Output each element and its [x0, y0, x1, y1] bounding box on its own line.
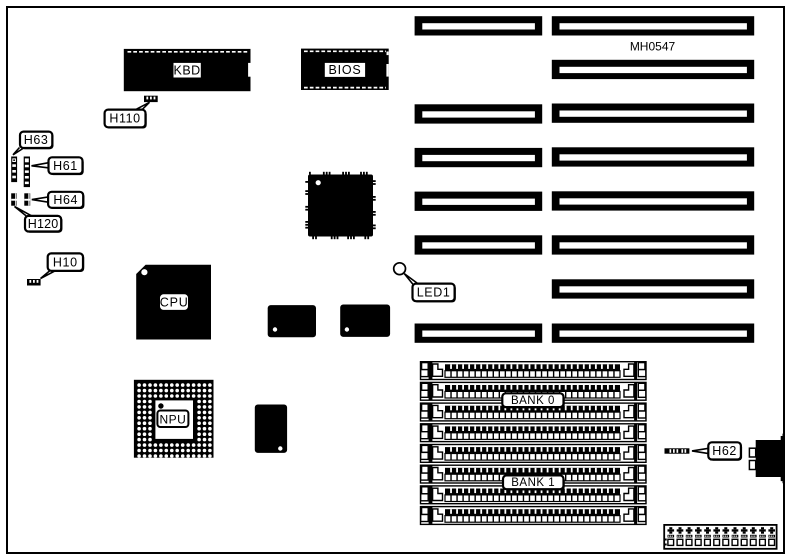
svg-text:BANK 1: BANK 1 — [511, 477, 555, 489]
svg-text:NPU: NPU — [159, 412, 186, 426]
svg-text:KBD: KBD — [173, 63, 200, 77]
svg-text:MH0547: MH0547 — [630, 40, 676, 54]
svg-text:H62: H62 — [712, 444, 737, 458]
svg-text:BIOS: BIOS — [328, 63, 361, 77]
svg-text:H61: H61 — [53, 159, 78, 173]
svg-text:H120: H120 — [28, 217, 59, 231]
svg-text:H63: H63 — [24, 133, 49, 147]
svg-text:H64: H64 — [53, 193, 78, 207]
svg-text:CPU: CPU — [160, 296, 189, 310]
svg-text:H10: H10 — [53, 255, 78, 269]
svg-text:H110: H110 — [109, 112, 140, 126]
svg-text:BANK 0: BANK 0 — [511, 395, 555, 407]
svg-text:LED1: LED1 — [417, 286, 451, 300]
